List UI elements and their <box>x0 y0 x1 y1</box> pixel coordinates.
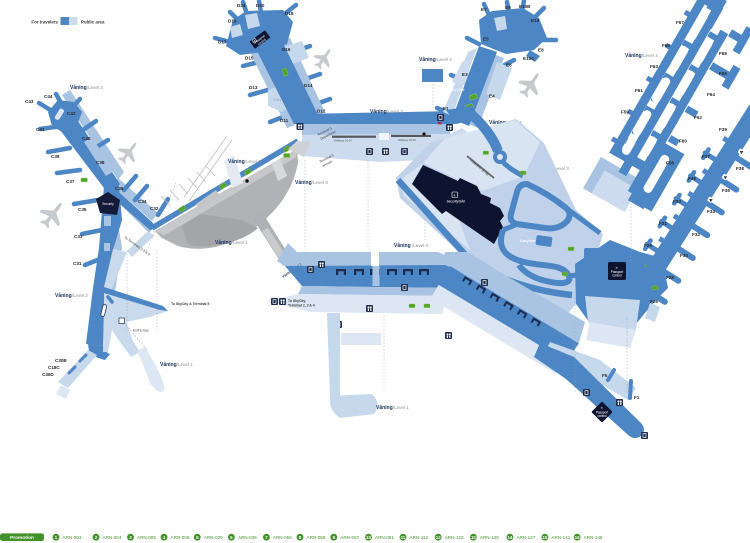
svg-text:F58: F58 <box>666 161 674 166</box>
svg-text:Våning/Level 3: Våning/Level 3 <box>295 179 328 186</box>
svg-text:Våning/Level 1: Våning/Level 1 <box>160 361 193 368</box>
svg-text:D20: D20 <box>256 3 265 8</box>
svg-text:D11: D11 <box>280 118 289 123</box>
svg-text:ARN-141: ARN-141 <box>551 535 570 540</box>
svg-text:To SkyCity,: To SkyCity, <box>288 299 306 303</box>
svg-text:F65: F65 <box>662 43 670 48</box>
svg-text:E10: E10 <box>531 18 540 23</box>
svg-text:ARN-091: ARN-091 <box>375 535 394 540</box>
svg-text:F29: F29 <box>644 243 652 248</box>
svg-text:11: 11 <box>401 535 406 540</box>
svg-text:E4: E4 <box>489 94 495 99</box>
svg-text:F68: F68 <box>719 51 727 56</box>
svg-text:Duty free: Duty free <box>448 88 464 92</box>
svg-text:D14: D14 <box>304 83 313 88</box>
svg-text:Våning/Level 4: Våning/Level 4 <box>419 56 452 63</box>
svg-text:Våning/Level 1: Våning/Level 1 <box>376 404 409 411</box>
svg-text:C32: C32 <box>150 206 159 211</box>
svg-text:Terminal 2, 3 & 4: Terminal 2, 3 & 4 <box>288 303 315 307</box>
svg-text:D19: D19 <box>228 19 237 24</box>
svg-text:F5: F5 <box>602 373 608 378</box>
svg-text:D13: D13 <box>249 85 258 90</box>
svg-text:D18: D18 <box>285 11 294 16</box>
svg-text:F38: F38 <box>736 166 744 171</box>
svg-text:Våning /Level 2: Våning /Level 2 <box>394 242 428 249</box>
svg-text:10: 10 <box>366 535 371 540</box>
svg-text:ARN-003: ARN-003 <box>63 535 82 540</box>
svg-text:Våning/Level 2: Våning/Level 2 <box>55 292 88 299</box>
svg-text:ARN-036: ARN-036 <box>238 535 257 540</box>
svg-text:D16: D16 <box>282 47 291 52</box>
svg-text:C38: C38 <box>96 160 105 165</box>
svg-text:Security: Security <box>102 202 114 206</box>
svg-text:control: control <box>597 414 607 418</box>
svg-text:F64: F64 <box>707 92 715 97</box>
svg-text:ARN-006: ARN-006 <box>171 535 190 540</box>
svg-text:To SkyCity & Terminal 5: To SkyCity & Terminal 5 <box>171 302 209 306</box>
svg-text:F35: F35 <box>688 176 696 181</box>
svg-text:E3: E3 <box>462 72 468 77</box>
svg-text:C41: C41 <box>36 127 45 132</box>
svg-text:E6: E6 <box>506 63 512 68</box>
svg-text:ARN-087: ARN-087 <box>340 535 359 540</box>
svg-text:F1: F1 <box>634 395 640 400</box>
svg-text:F28: F28 <box>666 275 674 280</box>
svg-text:control: control <box>612 273 622 277</box>
svg-text:C34: C34 <box>138 199 147 204</box>
svg-text:C44: C44 <box>44 94 53 99</box>
svg-text:F26: F26 <box>650 299 658 304</box>
svg-text:Promotion: Promotion <box>10 535 34 541</box>
svg-text:E10C: E10C <box>523 56 535 61</box>
svg-text:C36: C36 <box>115 186 124 191</box>
svg-text:C33: C33 <box>74 234 83 239</box>
svg-text:Walkway 01-04: Walkway 01-04 <box>334 139 352 143</box>
svg-text:F32: F32 <box>692 232 700 237</box>
svg-text:ARN-029: ARN-029 <box>204 535 223 540</box>
svg-text:✈: ✈ <box>601 406 604 410</box>
svg-text:E7: E7 <box>481 7 487 12</box>
svg-text:C40: C40 <box>82 136 91 141</box>
svg-text:C37: C37 <box>66 179 75 184</box>
svg-text:F60: F60 <box>679 139 687 144</box>
svg-text:Våning/Level 4: Våning/Level 4 <box>625 52 658 59</box>
svg-text:ARN-125: ARN-125 <box>480 535 499 540</box>
svg-text:Våning/Level 2: Våning/Level 2 <box>228 158 261 165</box>
svg-text:Exit to bus: Exit to bus <box>133 329 149 333</box>
svg-text:C35: C35 <box>78 207 87 212</box>
svg-text:C30B: C30B <box>55 358 67 363</box>
svg-text:F36: F36 <box>722 188 730 193</box>
svg-text:F66: F66 <box>719 71 727 76</box>
svg-text:ARN-112: ARN-112 <box>410 535 429 540</box>
svg-text:F33: F33 <box>673 199 681 204</box>
svg-text:F34: F34 <box>707 209 715 214</box>
svg-text:F67: F67 <box>676 20 684 25</box>
svg-text:D24: D24 <box>237 3 246 8</box>
svg-text:C43: C43 <box>25 99 34 104</box>
svg-text:Dutyfree: Dutyfree <box>520 239 535 243</box>
svg-text:F30: F30 <box>680 253 688 258</box>
svg-text:C31: C31 <box>73 261 82 266</box>
svg-text:ARN-146: ARN-146 <box>584 535 603 540</box>
svg-text:Våning/Level 3: Våning/Level 3 <box>70 84 103 91</box>
svg-text:ARN-127: ARN-127 <box>516 535 535 540</box>
svg-text:F39: F39 <box>719 127 727 132</box>
svg-text:E9: E9 <box>505 5 511 10</box>
svg-text:F59: F59 <box>621 110 629 115</box>
svg-text:E8: E8 <box>538 48 544 53</box>
svg-text:ARN-058: ARN-058 <box>273 535 292 540</box>
svg-text:F61: F61 <box>635 88 643 93</box>
svg-text:ARN-004: ARN-004 <box>103 535 122 540</box>
svg-text:ARN-123: ARN-123 <box>445 535 464 540</box>
svg-text:C39: C39 <box>51 154 60 159</box>
svg-text:E5: E5 <box>483 37 489 42</box>
svg-text:C30D: C30D <box>42 372 54 377</box>
svg-text:12: 12 <box>436 535 441 540</box>
svg-text:16: 16 <box>575 535 580 540</box>
svg-text:E10B: E10B <box>519 4 531 9</box>
svg-text:Public area: Public area <box>81 20 105 25</box>
svg-text:C18C: C18C <box>48 365 60 370</box>
svg-text:Våning/Level 1: Våning/Level 1 <box>215 239 248 246</box>
svg-text:F62: F62 <box>694 115 702 120</box>
svg-text:D15: D15 <box>245 56 254 61</box>
svg-text:15: 15 <box>542 535 547 540</box>
svg-text:C42: C42 <box>67 111 76 116</box>
svg-text:For travelers: For travelers <box>31 20 58 25</box>
svg-text:D12: D12 <box>317 109 326 114</box>
svg-text:13: 13 <box>471 535 476 540</box>
svg-text:F37: F37 <box>702 154 710 159</box>
svg-text:Walkway 05-08: Walkway 05-08 <box>398 138 416 142</box>
svg-text:14: 14 <box>507 535 512 540</box>
svg-text:Våning/Level 2: Våning/Level 2 <box>370 108 403 115</box>
svg-text:ARN-005: ARN-005 <box>137 535 156 540</box>
svg-text:ARN-059: ARN-059 <box>307 535 326 540</box>
svg-text:F63: F63 <box>650 64 658 69</box>
svg-text:F31: F31 <box>659 221 667 226</box>
svg-text:Security/SÄK: Security/SÄK <box>447 200 467 204</box>
svg-text:✈: ✈ <box>453 194 456 198</box>
svg-text:D17: D17 <box>218 40 227 45</box>
